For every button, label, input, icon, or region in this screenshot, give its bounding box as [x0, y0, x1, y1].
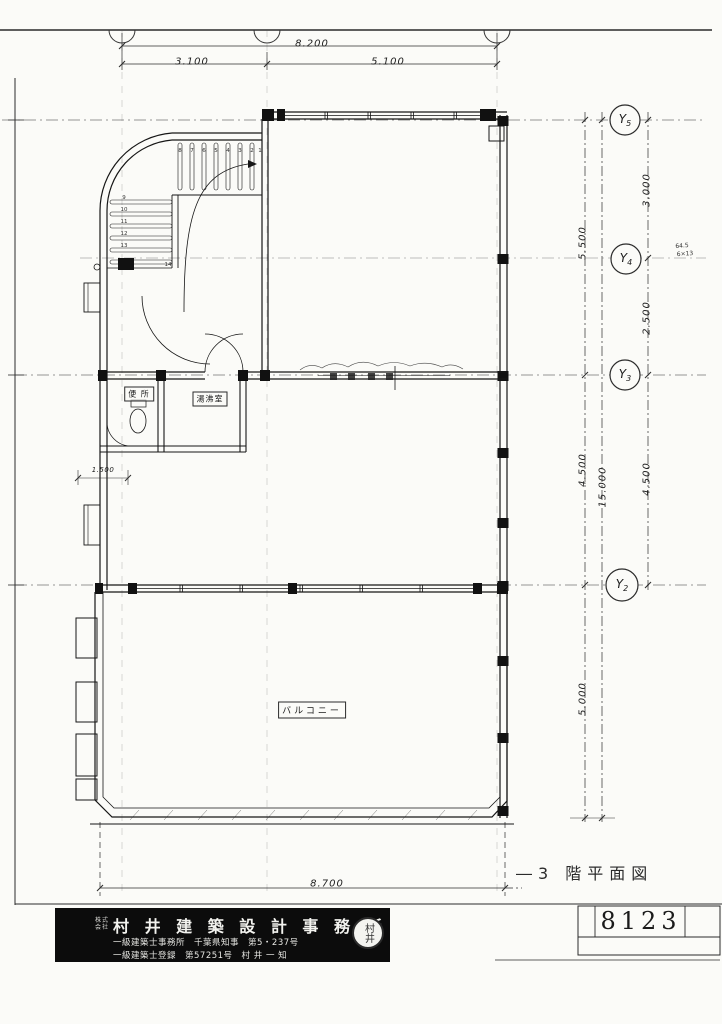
dim-top-right: 5.100 [371, 57, 405, 68]
svg-text:6: 6 [202, 148, 206, 154]
drawing-title: ―3 階平面図 [516, 860, 653, 884]
svg-text:9: 9 [122, 195, 126, 201]
dim-below-y2: 5.000 [578, 682, 589, 716]
y2-wall-window [95, 583, 508, 594]
svg-text:13: 13 [121, 243, 128, 249]
dim-bottom-overall: 8.700 [310, 879, 344, 890]
svg-text:14: 14 [165, 262, 172, 268]
revision-cloud [300, 362, 463, 370]
grid-label-y2: Y2 [616, 577, 628, 593]
dim-y5-y3: 5.500 [578, 226, 589, 260]
handwritten-note-line1: 64.5 [675, 242, 689, 250]
room-label-kitchenette: 湯沸室 [193, 392, 228, 407]
license-line-2: 一級建築士登録 第57251号 村 井 一 知 [113, 949, 287, 961]
floor-plan-sheet: 8 7 6 5 4 3 2 1 9 10 11 12 13 14 [0, 0, 722, 1024]
svg-text:7: 7 [190, 148, 194, 154]
dim-y3-y2-outer: 4.500 [642, 462, 653, 496]
svg-text:1: 1 [258, 148, 262, 154]
grid-label-y4: Y4 [620, 251, 632, 267]
dim-left-small: 1.500 [92, 466, 115, 474]
y-grid-bubbles [606, 105, 641, 601]
sheet-number: 8123 [600, 907, 681, 935]
handwritten-note-line2: 6×13 [677, 250, 694, 258]
north-wall-window [262, 109, 507, 141]
grid-label-y5: Y5 [619, 112, 631, 128]
dim-y3-y2-mid: 4.500 [578, 453, 589, 487]
west-wall [84, 268, 107, 590]
dim-right-overall: 15.000 [598, 467, 609, 508]
svg-text:10: 10 [121, 207, 128, 213]
svg-text:4: 4 [226, 148, 230, 154]
svg-text:5: 5 [214, 148, 218, 154]
room-label-toilet: 便 所 [124, 387, 154, 402]
staircase: 8 7 6 5 4 3 2 1 9 10 11 12 13 14 [94, 119, 268, 375]
svg-text:3: 3 [238, 148, 242, 154]
dim-top-overall: 8.200 [295, 39, 329, 50]
svg-text:11: 11 [121, 219, 128, 225]
dim-y5-y4: 3.000 [642, 173, 653, 207]
title-block-company-prefix: 株式 会社 [95, 917, 109, 931]
middle-wall-and-rooms [98, 334, 507, 452]
west-planters [76, 618, 97, 800]
grid-label-y3: Y3 [619, 367, 631, 383]
license-line-1: 一級建築士事務所 千葉県知事 第5・237号 [113, 936, 299, 948]
sheet-frame [0, 30, 722, 960]
toilet-fixture [130, 409, 146, 433]
room-label-balcony: バルコニー [278, 702, 346, 719]
title-block: 株式 会社 村 井 建 築 設 計 事 務 所 一級建築士事務所 千葉県知事 第… [55, 908, 390, 962]
dim-top-left: 3.100 [175, 57, 209, 68]
svg-text:8: 8 [178, 148, 182, 154]
architect-stamp: 村井 [352, 917, 384, 949]
office-name: 村 井 建 築 設 計 事 務 所 [113, 913, 387, 937]
dim-y4-y3: 2.500 [642, 301, 653, 335]
svg-text:12: 12 [121, 231, 128, 237]
svg-text:2: 2 [250, 148, 254, 154]
